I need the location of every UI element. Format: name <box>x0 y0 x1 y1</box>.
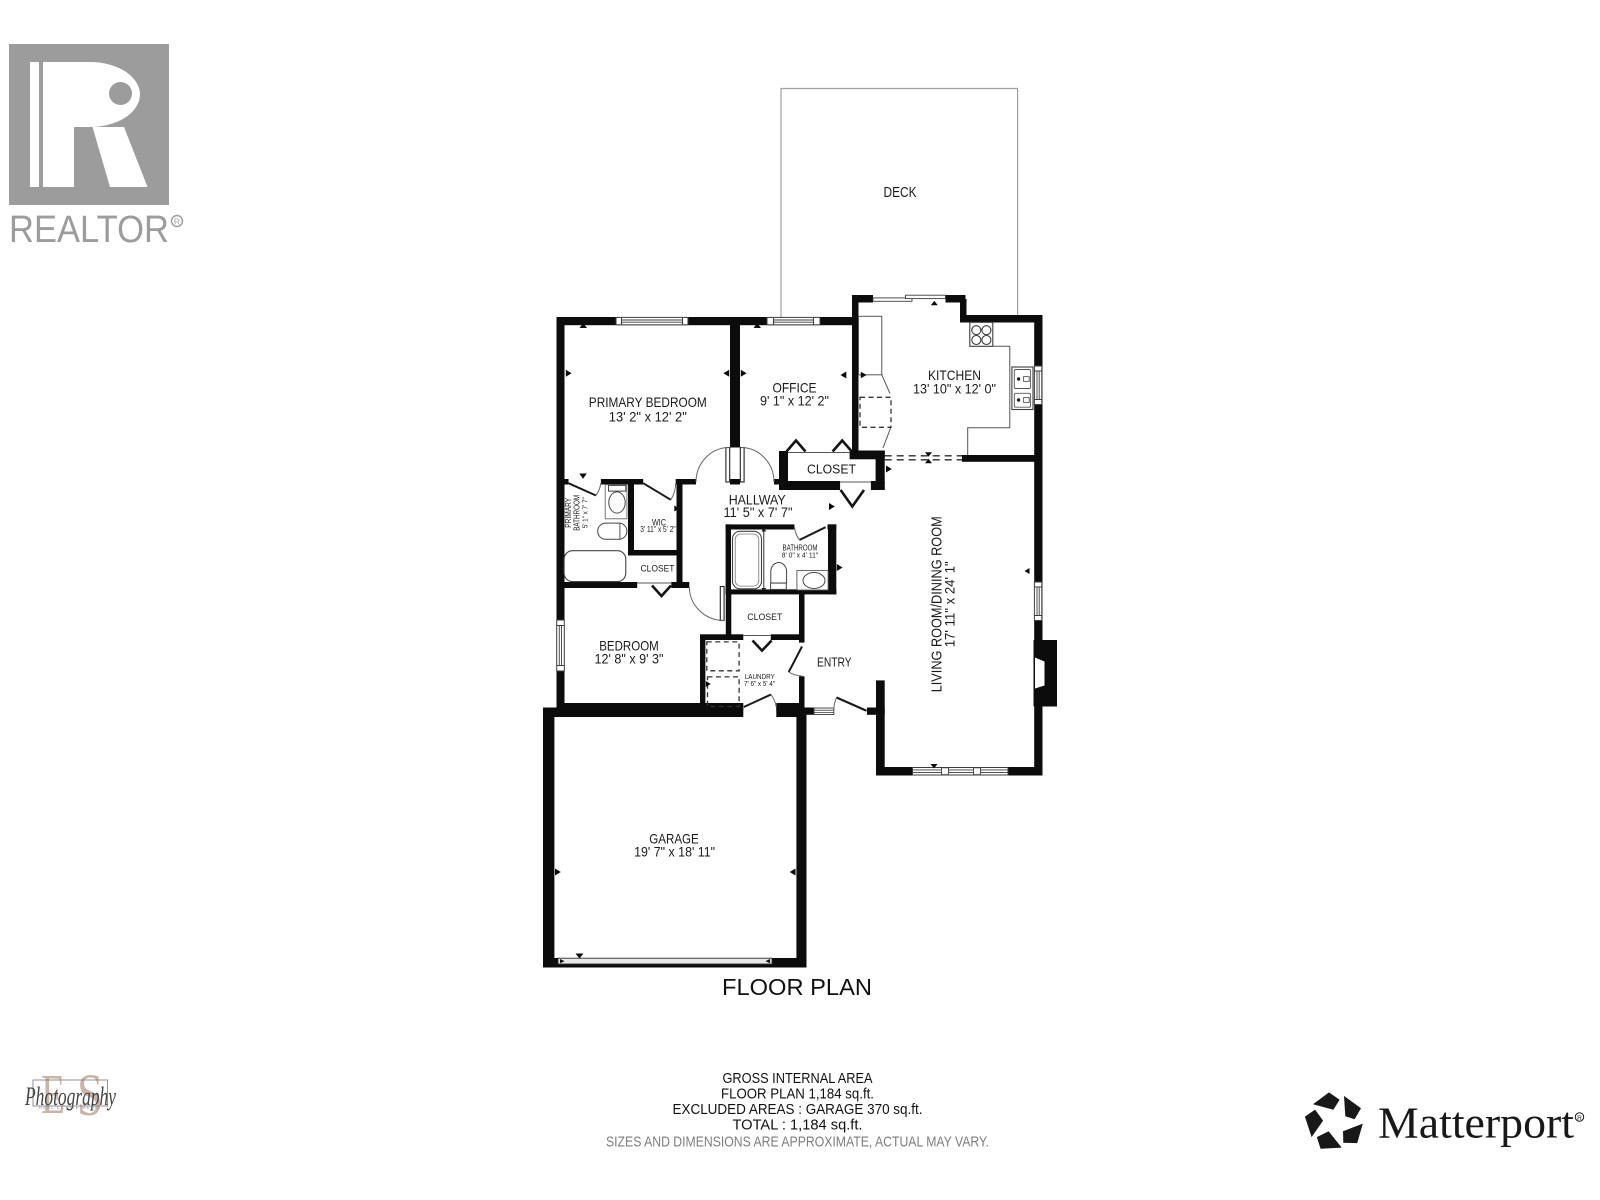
svg-text:8' 0" x 4' 11": 8' 0" x 4' 11" <box>782 551 819 560</box>
svg-text:FLOOR PLAN 1,184 sq.ft.: FLOOR PLAN 1,184 sq.ft. <box>721 1086 874 1102</box>
svg-text:EXCLUDED AREAS : GARAGE 370 s: EXCLUDED AREAS : GARAGE 370 sq.ft. <box>673 1102 923 1118</box>
svg-text:19' 7" x 18' 11": 19' 7" x 18' 11" <box>634 844 715 859</box>
svg-text:CLOSET: CLOSET <box>747 612 782 623</box>
svg-text:REAL ESTATE MEDIA: REAL ESTATE MEDIA <box>39 1105 101 1110</box>
svg-text:KITCHEN: KITCHEN <box>928 367 981 383</box>
svg-text:R: R <box>1577 1115 1582 1122</box>
svg-text:REALTOR: REALTOR <box>9 209 169 251</box>
svg-text:12' 8" x 9' 3": 12' 8" x 9' 3" <box>595 652 664 667</box>
svg-text:CLOSET: CLOSET <box>807 462 856 477</box>
svg-text:TOTAL : 1,184 sq.ft.: TOTAL : 1,184 sq.ft. <box>733 1118 863 1134</box>
svg-text:17' 11" x 24' 1": 17' 11" x 24' 1" <box>943 561 958 647</box>
svg-text:CLOSET: CLOSET <box>641 563 675 574</box>
svg-text:FLOOR PLAN: FLOOR PLAN <box>722 974 872 1000</box>
svg-text:DECK: DECK <box>884 184 917 201</box>
svg-text:SIZES AND DIMENSIONS ARE APPRO: SIZES AND DIMENSIONS ARE APPROXIMATE, AC… <box>606 1135 989 1151</box>
svg-text:R: R <box>174 217 180 227</box>
svg-text:Matterport: Matterport <box>1378 1099 1574 1148</box>
svg-text:LAUNDRY: LAUNDRY <box>745 672 775 681</box>
svg-text:GROSS INTERNAL AREA: GROSS INTERNAL AREA <box>723 1071 873 1087</box>
svg-text:13' 2" x 12' 2": 13' 2" x 12' 2" <box>609 409 687 424</box>
svg-text:7' 6" x 5' 4": 7' 6" x 5' 4" <box>744 681 775 688</box>
svg-text:PRIMARY BEDROOM: PRIMARY BEDROOM <box>589 394 707 410</box>
svg-text:BATHROOM: BATHROOM <box>573 495 582 531</box>
svg-text:9' 1" x 12' 2": 9' 1" x 12' 2" <box>760 394 829 409</box>
svg-text:13' 10" x 12' 0": 13' 10" x 12' 0" <box>913 382 996 397</box>
svg-text:ENTRY: ENTRY <box>817 655 852 670</box>
svg-text:11' 5" x 7' 7": 11' 5" x 7' 7" <box>724 505 793 520</box>
svg-text:3' 11" x 5' 2": 3' 11" x 5' 2" <box>640 525 676 534</box>
svg-text:5' 1" x 7' 7": 5' 1" x 7' 7" <box>583 497 590 528</box>
